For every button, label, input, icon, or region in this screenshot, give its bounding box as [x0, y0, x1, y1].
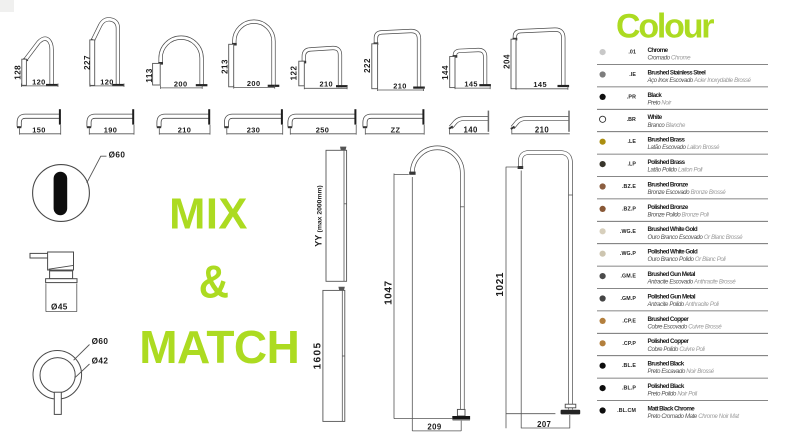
svg-text:Colour: Colour [616, 8, 714, 46]
svg-text:Brushed Stainless Steel: Brushed Stainless Steel [648, 69, 707, 76]
svg-text:.BR: .BR [627, 117, 636, 123]
svg-text:.GM.E: .GM.E [620, 274, 636, 280]
svg-text:.CP.E: .CP.E [622, 318, 636, 324]
svg-text:Brushed Copper: Brushed Copper [648, 316, 690, 323]
svg-text:Chrome: Chrome [648, 47, 669, 54]
svg-text:120: 120 [32, 78, 46, 87]
svg-text:222: 222 [363, 58, 372, 73]
svg-text:.WG.P: .WG.P [620, 251, 636, 257]
svg-text:113: 113 [145, 68, 154, 82]
svg-text:200: 200 [247, 79, 261, 88]
svg-text:140: 140 [463, 125, 477, 134]
svg-text:Polished Bronze: Polished Bronze [648, 204, 689, 211]
svg-text:200: 200 [174, 79, 188, 88]
svg-text:Matt Black Chrome: Matt Black Chrome [648, 405, 696, 412]
svg-text:Ouro Branco Polido Or Blanc Po: Ouro Branco Polido Or Blanc Poli [648, 257, 727, 263]
svg-text:227: 227 [83, 55, 92, 70]
svg-text:Branco Blanche: Branco Blanche [648, 123, 686, 129]
svg-text:.LP: .LP [627, 162, 636, 168]
svg-text:.WG.E: .WG.E [620, 229, 636, 235]
svg-text:.BL.P: .BL.P [622, 386, 636, 392]
svg-text:.GM.P: .GM.P [620, 296, 636, 302]
svg-text:White: White [648, 114, 663, 121]
svg-text:204: 204 [503, 54, 512, 69]
svg-text:Ø42: Ø42 [92, 357, 109, 366]
svg-text:Preto Escavado Noir Brossé: Preto Escavado Noir Brossé [648, 369, 715, 375]
svg-text:Cobre Polido Cuivre Poli: Cobre Polido Cuivre Poli [648, 347, 706, 353]
svg-text:Polished Copper: Polished Copper [648, 338, 690, 345]
svg-text:.01: .01 [628, 50, 636, 56]
svg-text:145: 145 [533, 80, 547, 89]
svg-text:Cobre Escovado Cuivre Brossé: Cobre Escovado Cuivre Brossé [648, 324, 723, 330]
svg-text:Brushed White Gold: Brushed White Gold [648, 226, 698, 233]
svg-text:1021: 1021 [495, 272, 506, 297]
svg-text:ZZ: ZZ [391, 126, 401, 135]
svg-text:.LE: .LE [627, 139, 636, 145]
svg-text:Antracite Escovado Anthracite: Antracite Escovado Anthracite Brossé [647, 280, 737, 286]
svg-text:&: & [199, 256, 229, 308]
svg-text:Preto Cromado Mate Chrome Noir: Preto Cromado Mate Chrome Noir Mat [648, 414, 740, 420]
svg-text:Brushed Bronze: Brushed Bronze [648, 181, 689, 188]
svg-text:.BZ.P: .BZ.P [622, 206, 636, 212]
svg-text:MATCH: MATCH [139, 321, 299, 373]
svg-text:Ø60: Ø60 [92, 337, 109, 346]
svg-text:Latão Polido Laiton Poli: Latão Polido Laiton Poli [648, 168, 704, 174]
svg-text:.IE: .IE [629, 72, 636, 78]
svg-text:.BL.E: .BL.E [622, 363, 636, 369]
svg-text:145: 145 [464, 80, 478, 89]
svg-text:Ouro Branco Escovado Or Blanc: Ouro Branco Escovado Or Blanc Brossé [648, 235, 744, 241]
svg-text:Polished Black: Polished Black [648, 383, 685, 390]
svg-text:210: 210 [178, 126, 192, 135]
svg-text:Ø45: Ø45 [51, 302, 68, 311]
svg-text:Latão Escovado Laiton Brossé: Latão Escovado Laiton Brossé [648, 145, 721, 151]
svg-text:230: 230 [247, 126, 261, 135]
svg-text:150: 150 [32, 126, 46, 135]
svg-text:Preto Noir: Preto Noir [648, 100, 673, 106]
svg-text:207: 207 [537, 420, 551, 429]
svg-text:1047: 1047 [384, 280, 395, 305]
svg-text:122: 122 [290, 66, 299, 81]
svg-text:Bronze Polido Bronze Poli: Bronze Polido Bronze Poli [648, 212, 710, 218]
svg-text:Polished White Gold: Polished White Gold [648, 249, 698, 256]
svg-text:.CP.P: .CP.P [622, 341, 636, 347]
svg-text:Bronze Escovado Bronze Brossé: Bronze Escovado Bronze Brossé [648, 190, 727, 196]
svg-text:209: 209 [427, 422, 441, 431]
svg-text:MIX: MIX [169, 191, 248, 239]
svg-text:Cromado Chrome: Cromado Chrome [648, 56, 692, 62]
svg-text:.BL.CM: .BL.CM [617, 408, 636, 414]
svg-text:210: 210 [393, 81, 407, 90]
svg-text:.PR: .PR [627, 94, 636, 100]
svg-text:Brushed Brass: Brushed Brass [648, 137, 686, 144]
svg-text:Antracite Polido Anthracite Po: Antracite Polido Anthracite Poli [647, 302, 720, 308]
svg-text:Brushed Gun Metal: Brushed Gun Metal [648, 271, 696, 278]
svg-text:.BZ.E: .BZ.E [622, 184, 636, 190]
svg-text:250: 250 [316, 126, 330, 135]
svg-text:144: 144 [441, 65, 450, 80]
svg-text:213: 213 [221, 59, 230, 74]
svg-text:120: 120 [100, 78, 114, 87]
svg-text:Brushed Black: Brushed Black [648, 361, 685, 368]
svg-text:Black: Black [648, 92, 663, 99]
svg-text:210: 210 [320, 80, 334, 89]
svg-text:128: 128 [13, 65, 22, 80]
svg-text:Aço Inox Escovado Acier Inoxyd: Aço Inox Escovado Acier Inoxydable Bross… [647, 78, 752, 84]
svg-text:210: 210 [535, 125, 549, 134]
svg-text:Polished Gun Metal: Polished Gun Metal [648, 293, 696, 300]
svg-text:Preto Polido Noir Poli: Preto Polido Noir Poli [648, 392, 698, 398]
svg-text:Polished Brass: Polished Brass [648, 159, 686, 166]
svg-text:Ø60: Ø60 [109, 150, 126, 159]
svg-text:1605: 1605 [313, 342, 324, 370]
svg-text:190: 190 [104, 126, 118, 135]
